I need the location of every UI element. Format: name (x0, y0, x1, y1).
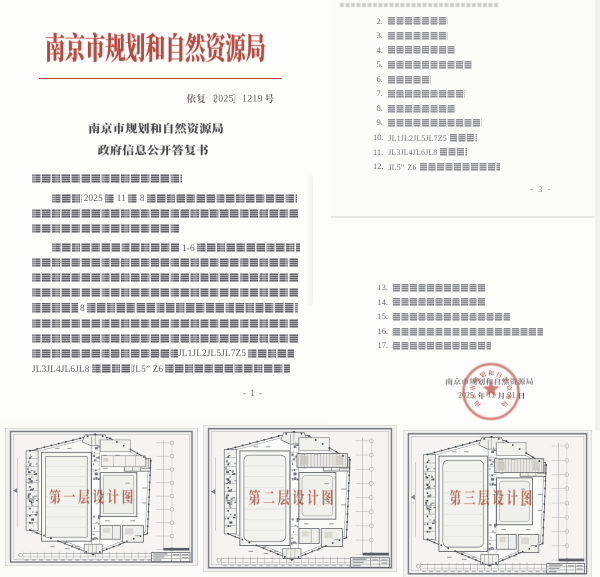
svg-text:2025: 2025 (213, 94, 234, 105)
svg-text:1219: 1219 (242, 94, 263, 105)
